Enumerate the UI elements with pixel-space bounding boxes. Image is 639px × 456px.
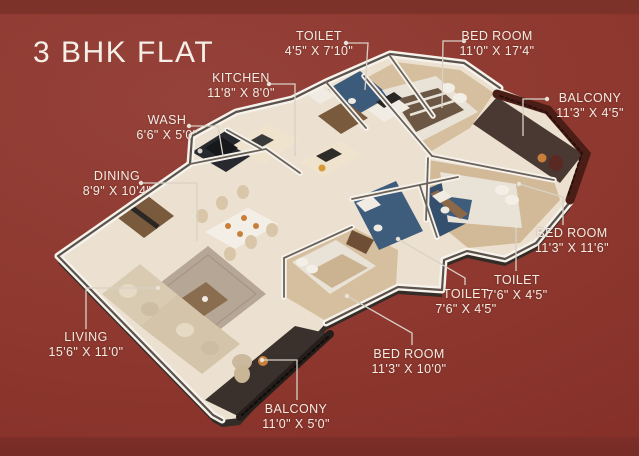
room-name: KITCHEN: [212, 71, 270, 85]
balcony-1-table: [538, 154, 547, 163]
room-label-bedroom-2: BED ROOM 11'3" X 11'6": [535, 226, 609, 256]
room-size: 11'0" X 5'0": [262, 417, 330, 432]
room-size: 11'3" X 11'6": [535, 241, 609, 256]
room-name: BED ROOM: [536, 226, 607, 240]
room-size: 15'6" X 11'0": [49, 345, 124, 360]
room-label-balcony-1: BALCONY 11'3" X 4'5": [556, 91, 624, 121]
dining-chair: [196, 209, 208, 223]
room-name: TOILET: [494, 273, 540, 287]
room-label-toilet-top: TOILET 4'5" X 7'10": [285, 29, 354, 59]
dining-chair: [237, 185, 249, 199]
room-name: TOILET: [443, 287, 489, 301]
balcony-1-chair: [549, 155, 563, 171]
page-title: 3 BHK FLAT: [33, 36, 214, 70]
room-label-bedroom-3: BED ROOM 11'3" X 10'0": [372, 347, 447, 377]
room-size: 7'6" X 4'5": [435, 302, 496, 317]
poster-background: 3 BHK FLAT TOILET 4'5" X 7'10" BED ROOM …: [0, 0, 639, 456]
room-label-balcony-2: BALCONY 11'0" X 5'0": [262, 402, 330, 432]
room-name: BALCONY: [265, 402, 328, 416]
room-label-toilet-right: TOILET 7'6" X 4'5": [486, 273, 547, 303]
room-name: WASH: [148, 113, 187, 127]
room-label-living: LIVING 15'6" X 11'0": [49, 330, 124, 360]
dining-chair: [245, 235, 257, 249]
room-size: 7'6" X 4'5": [486, 288, 547, 303]
room-name: BED ROOM: [373, 347, 444, 361]
dining-chair: [266, 223, 278, 237]
room-size: 11'3" X 10'0": [372, 362, 447, 377]
room-name: TOILET: [296, 29, 342, 43]
room-label-dining: DINING 8'9" X 10'4": [83, 169, 152, 199]
dining-chair: [224, 247, 236, 261]
balcony-2-chair: [234, 365, 250, 383]
room-size: 4'5" X 7'10": [285, 44, 354, 59]
room-label-bedroom-1: BED ROOM 11'0" X 17'4": [460, 29, 535, 59]
room-size: 11'8" X 8'0": [207, 86, 275, 101]
room-name: DINING: [94, 169, 140, 183]
room-label-wash: WASH 6'6" X 5'0": [136, 113, 197, 143]
room-size: 8'9" X 10'4": [83, 184, 152, 199]
room-name: LIVING: [64, 330, 107, 344]
room-size: 6'6" X 5'0": [136, 128, 197, 143]
room-size: 11'3" X 4'5": [556, 106, 624, 121]
dining-chair: [216, 196, 228, 210]
room-label-kitchen: KITCHEN 11'8" X 8'0": [207, 71, 275, 101]
room-size: 11'0" X 17'4": [460, 44, 535, 59]
room-name: BALCONY: [559, 91, 622, 105]
room-name: BED ROOM: [461, 29, 532, 43]
